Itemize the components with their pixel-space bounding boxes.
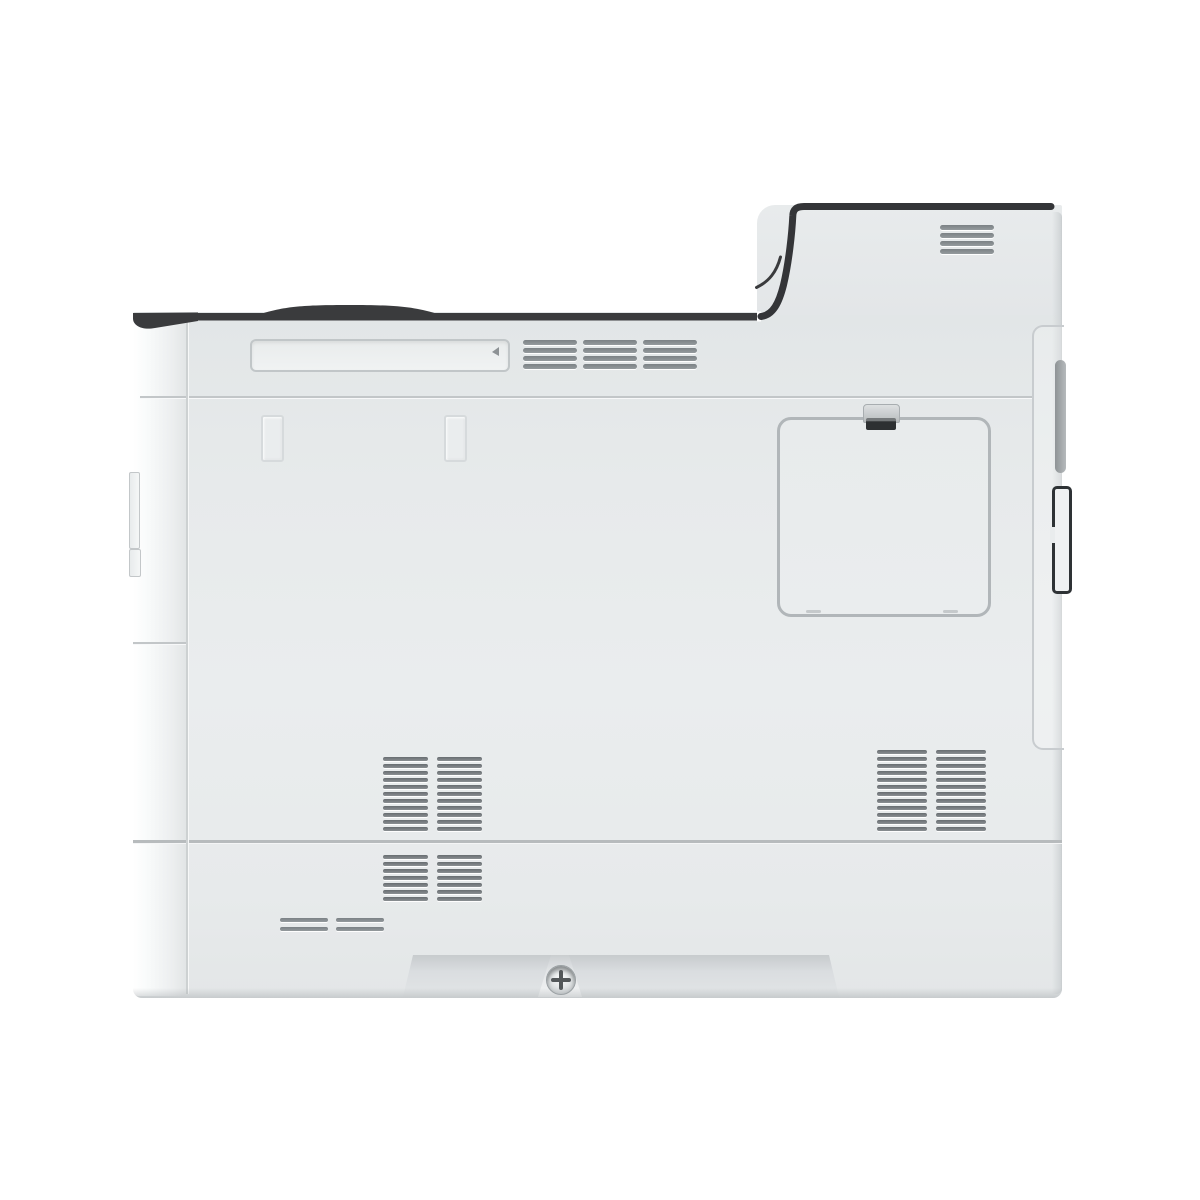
vent-slat — [936, 806, 986, 810]
hinge-tab-lower — [129, 549, 141, 577]
vent-slat — [437, 778, 482, 782]
vent-slat — [383, 876, 428, 880]
photo-canvas — [0, 0, 1200, 1200]
vent-slat — [437, 855, 482, 859]
carry-handle-recess — [250, 339, 510, 372]
vent-slat — [383, 813, 428, 817]
vent-slat — [940, 241, 994, 246]
vent-slat — [877, 792, 927, 796]
access-panel — [777, 417, 991, 617]
hinge-tab-upper — [129, 472, 140, 549]
vent-slat — [437, 799, 482, 803]
vent-slat — [383, 890, 428, 894]
screw-slot-vertical — [559, 970, 563, 990]
vent-slat — [643, 364, 697, 369]
access-panel-hinge-right — [943, 610, 958, 613]
vent-slat — [383, 897, 428, 901]
vent-slat — [336, 927, 384, 931]
vent-slat — [583, 348, 637, 353]
vent-slat — [877, 778, 927, 782]
vent-slat — [877, 757, 927, 761]
vent-slat — [383, 806, 428, 810]
body-bottom-shadow — [133, 988, 1062, 998]
vent-slat — [936, 820, 986, 824]
vent-slat — [936, 757, 986, 761]
vent-slat — [583, 340, 637, 345]
vent-slat — [936, 778, 986, 782]
vent-slat — [437, 764, 482, 768]
panel-seam-lower — [133, 840, 1062, 843]
vent-grid-mid-left-lower — [383, 855, 482, 901]
vent-slat — [437, 897, 482, 901]
vent-slat — [643, 340, 697, 345]
vent-slat — [523, 356, 577, 361]
vent-slat — [437, 890, 482, 894]
vent-slat — [383, 785, 428, 789]
vent-slat — [383, 855, 428, 859]
vent-slat — [877, 827, 927, 831]
vent-slat — [583, 364, 637, 369]
side-strip-vertical-seam — [186, 320, 188, 994]
mount-slot-right — [444, 415, 467, 462]
vent-slat — [936, 771, 986, 775]
vent-slat — [437, 806, 482, 810]
vent-slat — [523, 348, 577, 353]
vent-slat — [437, 883, 482, 887]
vent-slat — [940, 233, 994, 238]
vent-slat — [280, 927, 328, 931]
vent-slat — [383, 778, 428, 782]
interface-slot-cover — [1055, 360, 1066, 473]
vent-slat — [936, 750, 986, 754]
vent-slat — [437, 771, 482, 775]
vent-slat — [437, 869, 482, 873]
vent-slat — [280, 918, 328, 922]
mount-slot-left — [261, 415, 284, 462]
access-panel-hinge-left — [806, 610, 821, 613]
access-panel-latch-grip — [866, 418, 896, 430]
vent-slat — [437, 820, 482, 824]
vent-slat — [523, 364, 577, 369]
vent-slat — [877, 785, 927, 789]
vent-slat — [877, 820, 927, 824]
vent-slat — [383, 771, 428, 775]
vent-slat — [383, 799, 428, 803]
vent-slat — [383, 820, 428, 824]
vent-slat — [936, 764, 986, 768]
vent-slat — [877, 806, 927, 810]
vent-slat — [437, 813, 482, 817]
vent-slat — [383, 862, 428, 866]
rear-top-cover — [757, 205, 1062, 315]
vent-slat — [877, 813, 927, 817]
side-strip-seam — [133, 642, 186, 644]
vent-grid-mid-left-upper — [383, 757, 482, 831]
vent-slat — [383, 883, 428, 887]
vent-slat — [437, 827, 482, 831]
vent-slat — [437, 785, 482, 789]
vent-slat — [383, 792, 428, 796]
vent-slat — [940, 225, 994, 230]
vent-slat — [936, 792, 986, 796]
rear-port-notch — [1050, 527, 1055, 543]
vent-slat — [643, 356, 697, 361]
vent-slots-small-pair — [280, 918, 384, 931]
vent-slat — [437, 862, 482, 866]
side-edge-strip — [133, 319, 186, 996]
vent-slat — [877, 750, 927, 754]
vent-slat — [936, 785, 986, 789]
panel-seam-upper — [140, 396, 1033, 398]
vent-slat — [877, 799, 927, 803]
vent-slat — [940, 249, 994, 254]
vent-grid-mid-right — [877, 750, 986, 831]
vent-slat — [877, 764, 927, 768]
vent-slat — [643, 348, 697, 353]
vent-slat — [877, 771, 927, 775]
vent-slat — [437, 876, 482, 880]
vent-slat — [936, 799, 986, 803]
vent-slat — [437, 757, 482, 761]
vent-slat — [383, 869, 428, 873]
vent-slat — [383, 757, 428, 761]
top-vent-grid — [523, 340, 697, 369]
vent-slat — [936, 813, 986, 817]
vent-slat — [583, 356, 637, 361]
rear-port — [1052, 486, 1072, 594]
vent-slat — [437, 792, 482, 796]
rear-exhaust-vent — [940, 225, 994, 254]
vent-slat — [383, 764, 428, 768]
vent-slat — [336, 918, 384, 922]
vent-slat — [383, 827, 428, 831]
vent-slat — [936, 827, 986, 831]
vent-slat — [523, 340, 577, 345]
